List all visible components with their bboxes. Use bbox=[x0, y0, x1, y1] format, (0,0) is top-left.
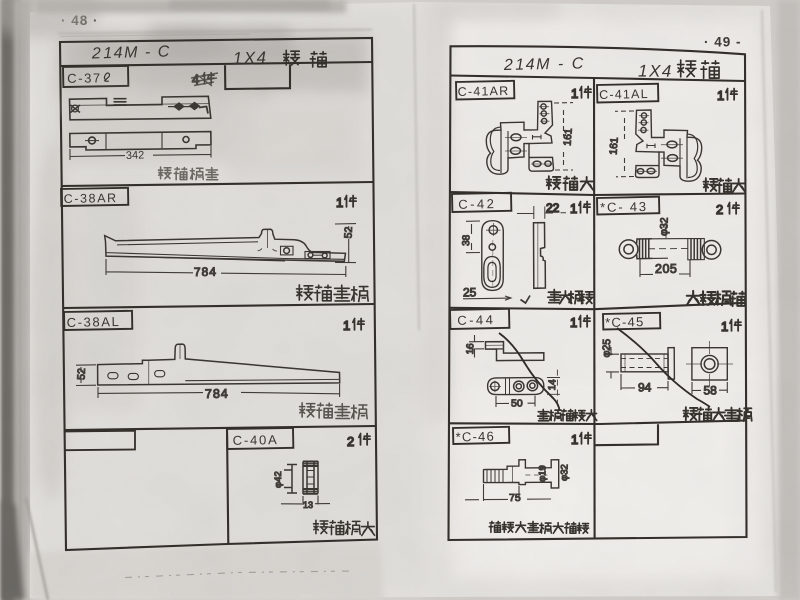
svg-text:1: 1 bbox=[717, 88, 724, 103]
svg-text:1: 1 bbox=[570, 315, 577, 330]
svg-text:C-42: C-42 bbox=[458, 196, 496, 212]
svg-text:C-41AL: C-41AL bbox=[599, 87, 649, 102]
svg-text:214M-C: 214M-C bbox=[503, 55, 585, 74]
svg-text:13: 13 bbox=[303, 500, 313, 510]
svg-text:50: 50 bbox=[511, 398, 523, 410]
svg-text:1X4: 1X4 bbox=[233, 48, 268, 68]
svg-text:1: 1 bbox=[571, 86, 578, 101]
svg-text:75: 75 bbox=[509, 492, 521, 504]
svg-text:1: 1 bbox=[343, 318, 350, 333]
svg-text:*C-46: *C-46 bbox=[456, 429, 496, 445]
svg-text:161: 161 bbox=[562, 128, 575, 146]
svg-text:38: 38 bbox=[461, 234, 472, 246]
svg-text:16: 16 bbox=[465, 343, 476, 355]
svg-text:φ19: φ19 bbox=[537, 465, 549, 482]
svg-text:214M-C: 214M-C bbox=[91, 43, 171, 62]
svg-text:1: 1 bbox=[721, 319, 728, 334]
svg-text:*C- 43: *C- 43 bbox=[600, 199, 648, 215]
svg-text:784: 784 bbox=[194, 265, 217, 279]
svg-text:161: 161 bbox=[608, 137, 621, 155]
svg-text:14: 14 bbox=[547, 379, 558, 391]
svg-text:58: 58 bbox=[704, 384, 718, 398]
svg-text:94: 94 bbox=[638, 381, 652, 395]
svg-text:1X4: 1X4 bbox=[638, 62, 673, 81]
svg-text:25: 25 bbox=[463, 286, 477, 300]
svg-text:1: 1 bbox=[336, 195, 343, 210]
svg-text:2: 2 bbox=[347, 434, 354, 449]
svg-text:52: 52 bbox=[76, 368, 88, 380]
svg-text:342: 342 bbox=[126, 149, 145, 162]
svg-text:*C-45: *C-45 bbox=[605, 314, 645, 330]
svg-text:φ32: φ32 bbox=[559, 464, 571, 481]
svg-text:φ42: φ42 bbox=[273, 471, 284, 488]
svg-text:2: 2 bbox=[716, 202, 723, 217]
svg-text:205: 205 bbox=[655, 262, 677, 276]
svg-text:C-41AR: C-41AR bbox=[458, 84, 510, 99]
svg-text:1: 1 bbox=[570, 201, 577, 216]
svg-text:C-38AR: C-38AR bbox=[64, 191, 118, 206]
svg-text:φ32: φ32 bbox=[658, 217, 671, 236]
svg-text:784: 784 bbox=[205, 387, 229, 401]
svg-text:φ25: φ25 bbox=[601, 339, 614, 358]
svg-text:C-40A: C-40A bbox=[233, 432, 279, 448]
svg-text:52: 52 bbox=[343, 226, 355, 238]
svg-text:C-44: C-44 bbox=[457, 312, 495, 328]
svg-text:1: 1 bbox=[571, 432, 578, 447]
svg-text:C-37: C-37 bbox=[67, 70, 102, 86]
svg-text:C-38AL: C-38AL bbox=[67, 314, 121, 330]
